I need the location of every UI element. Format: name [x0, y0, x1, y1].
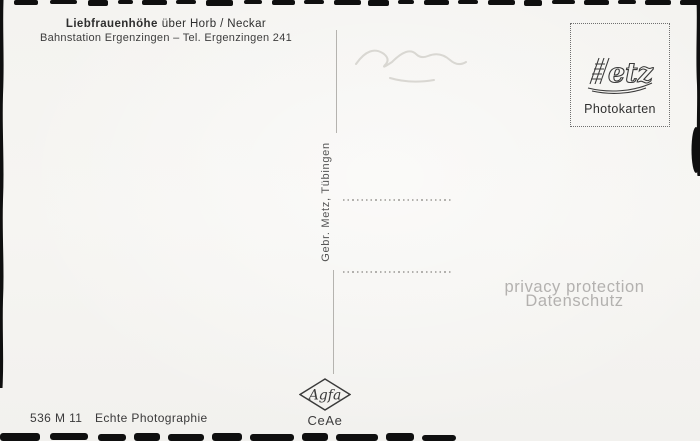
caption-block: Liebfrauenhöheüber Horb / Neckar Bahnsta… [20, 17, 312, 46]
divider-rule-top [336, 30, 337, 133]
scan-artifact-bottom [0, 431, 700, 441]
caption-title-place: Liebfrauenhöhe [66, 18, 158, 30]
caption-subtitle: Bahnstation Ergenzingen – Tel. Ergenzing… [20, 32, 312, 46]
metz-logo: etz [580, 46, 660, 96]
divider-rule-bottom [333, 270, 334, 374]
address-line-1 [343, 199, 452, 201]
stamp-box: etz Photokarten [570, 23, 670, 127]
scan-artifact-left [0, 0, 8, 441]
agfa-logo: Agfa CeAe [299, 378, 351, 428]
caption-title: Liebfrauenhöheüber Horb / Neckar [20, 17, 312, 31]
metz-logo-text: etz [608, 58, 654, 89]
print-code: CeAe [299, 413, 351, 428]
order-code: 536 M 11 [30, 411, 82, 425]
address-line-2 [343, 271, 452, 273]
privacy-watermark: privacy protection Datenschutz [462, 280, 687, 308]
postcard-back: Liebfrauenhöheüber Horb / Neckar Bahnsta… [0, 0, 700, 441]
agfa-diamond-icon: Agfa [299, 378, 351, 411]
agfa-logo-text: Agfa [307, 388, 342, 404]
caption-title-region: über Horb / Neckar [162, 18, 266, 30]
photokarten-label: Photokarten [584, 102, 656, 116]
pencil-scribble [348, 26, 478, 86]
scan-artifact-top [0, 0, 700, 10]
scan-artifact-right [688, 0, 700, 200]
print-type-label: Echte Photographie [95, 411, 208, 425]
publisher-spine-text: Gebr. Metz, Tübingen [320, 142, 332, 262]
watermark-line-2: Datenschutz [462, 294, 687, 308]
